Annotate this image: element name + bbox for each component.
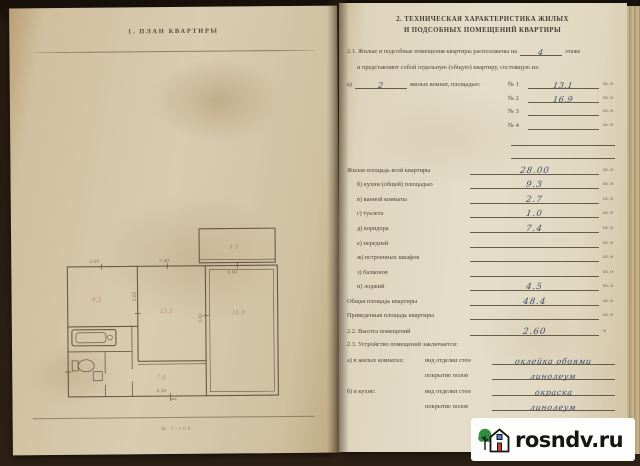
page-stack-edge (627, 6, 640, 454)
room1-area-label: 13.1 (160, 308, 173, 315)
kitchen-area-label: 9.3 (92, 297, 102, 304)
dimension-ticks (64, 262, 238, 402)
value-blank (470, 310, 599, 320)
walls-kitchen-value: окраска (534, 389, 573, 396)
unit-label: кв. м (602, 181, 618, 189)
form-line-kitchen: б) кухни (общей) площадью 9.3 кв. м (347, 175, 618, 190)
empty-blank (511, 149, 615, 159)
room-area-blank (528, 120, 599, 130)
form-line-balconies: з) балконов кв. м (347, 262, 618, 277)
rooms-block: а) 2 жилых комнат, площадью: № 1 13.1 кв… (347, 76, 618, 159)
room-area-row: № 1 13.1 кв. м (508, 76, 618, 89)
empty-continuation-line (508, 146, 618, 159)
dim-bottom: 4.28 (156, 389, 166, 394)
floors-living-value: линолеум (530, 373, 577, 380)
value-blank: линолеум (492, 370, 615, 380)
form-line-closets: ж) встроенных шкафов кв. м (347, 248, 618, 263)
kitchen-value: 9.3 (526, 182, 544, 189)
dim-top-left: 2.60 (89, 260, 99, 265)
empty-continuation-line (508, 130, 618, 146)
loggia-value: 4.5 (526, 284, 544, 291)
room-area-row: № 3 кв. м (508, 103, 618, 116)
bathtub-fixture (72, 330, 116, 346)
form-line-loggia: и) лоджий 4.5 кв. м (347, 277, 618, 292)
left-page-title: 1. ПЛАН КВАРТИРЫ (9, 27, 337, 37)
dim-vertical-mid: 3.42 (199, 313, 204, 323)
room-area-value: 13.1 (553, 82, 574, 89)
living-area-value: 28.00 (519, 168, 550, 175)
area-lines-block: Жилая площадь всей квартиры 28.00 кв. м … (347, 160, 618, 321)
form-line-bathroom: в) ванной комнаты 2.7 кв. м (347, 189, 618, 204)
watermark-rosndv[interactable]: rosndv.ru (471, 418, 635, 461)
form-line-living-area: Жилая площадь всей квартиры 28.00 кв. м (347, 160, 618, 175)
page-gutter-shadow (327, 0, 349, 466)
value-blank: оклейка обоями (492, 355, 615, 365)
value-blank: 2.7 (470, 194, 599, 204)
unit-label: кв. м (602, 283, 618, 291)
corridor-value: 7.4 (526, 226, 544, 233)
room-number: № 2 (508, 95, 525, 103)
toilet-value: 1.0 (526, 211, 544, 218)
right-page-title: 2. ТЕХНИЧЕСКАЯ ХАРАКТЕРИСТИКА ЖИЛЫХ И ПО… (347, 14, 618, 36)
finish-row-walls-living: а) в жилых комнатах: вид отделки стен ок… (347, 349, 618, 365)
unit-label: кв. м (602, 240, 618, 248)
value-blank: 7.4 (470, 223, 599, 233)
finish-row-floors-living: покрытие полов линолеум (347, 365, 618, 381)
form-line-corridor: д) коридора 7.4 кв. м (347, 218, 618, 233)
balcony-area-label: 4.5 (228, 243, 239, 250)
dim-top-mid: 3.40 (159, 259, 169, 264)
unit-label: кв. м (602, 210, 618, 218)
form-line-toilet: г) туалета 1.0 кв. м (347, 204, 618, 219)
right-page-title-line2: И ПОДСОБНЫХ ПОМЕЩЕНИЙ КВАРТИРЫ (347, 25, 618, 36)
room-number: № 1 (508, 81, 525, 89)
floor-plan: 9.3 13.1 16.9 7.4 4.5 2.60 3.40 4.00 4.2… (59, 220, 311, 409)
scale-note: М 1:100 (13, 426, 341, 434)
room-number: № 3 (508, 108, 525, 116)
unit-label: кв. м (602, 167, 618, 175)
form-line-reduced-area: Приведенная площадь квартиры кв. м (347, 306, 618, 321)
room-area-row: № 4 кв. м (508, 116, 618, 129)
unit-label: кв. м (602, 298, 618, 306)
section-2-1-line2: и представляют собой отдельную (общую) к… (357, 64, 618, 72)
right-page-title-line1: 2. ТЕХНИЧЕСКАЯ ХАРАКТЕРИСТИКА ЖИЛЫХ (347, 14, 618, 25)
value-blank: 2.60 (470, 326, 599, 336)
section-2-2-height-line: 2.2. Высота помещений 2.60 м (347, 321, 618, 336)
unit-label: кв. м (602, 312, 618, 320)
right-page: 2. ТЕХНИЧЕСКАЯ ХАРАКТЕРИСТИКА ЖИЛЫХ И ПО… (339, 3, 627, 452)
room-areas-column: № 1 13.1 кв. м № 2 16.9 кв. м № 3 кв. м (508, 76, 618, 159)
line1-text: 2.1. Жилые и подсобные помещения квартир… (347, 48, 517, 56)
room-area-row: № 2 16.9 кв. м (508, 89, 618, 102)
walls-living-value: оклейка обоями (515, 358, 593, 365)
height-value: 2.60 (522, 329, 546, 336)
unit-label: кв. м (602, 122, 618, 130)
room-area-blank (528, 106, 599, 116)
rooms-count-value: 2 (378, 82, 385, 89)
section-2-3-heading: 2.3. Устройство помещений заключается: (347, 341, 618, 349)
title-rule (33, 50, 315, 53)
form-line-hall: е) передней кв. м (347, 233, 618, 248)
finish-row-floors-kitchen: покрытие полов линолеум (347, 396, 618, 412)
unit-label: кв. м (602, 81, 618, 89)
finish-block: а) в жилых комнатах: вид отделки стен ок… (347, 349, 618, 411)
floors-kitchen-value: линолеум (530, 404, 577, 411)
value-blank: 1.0 (470, 208, 599, 218)
room-area-value: 16.9 (553, 96, 574, 103)
outer-walls (67, 265, 278, 397)
dim-top-right: 4.00 (227, 270, 237, 275)
value-blank: 28.00 (470, 165, 599, 175)
value-blank: 48.4 (470, 296, 599, 306)
rooms-count-suffix: жилых комнат, площадью: (410, 81, 481, 89)
value-blank (470, 252, 599, 262)
unit-label: кв. м (602, 108, 618, 116)
dim-vertical-left: 2.62 (133, 291, 138, 301)
line1-suffix: этаже (565, 48, 580, 56)
section-2-1-line1: 2.1. Жилые и подсобные помещения квартир… (347, 46, 618, 56)
value-blank: 4.5 (470, 281, 599, 291)
unit-label: кв. м (602, 196, 618, 204)
unit-label: м (602, 328, 618, 336)
unit-label: кв. м (602, 254, 618, 262)
watermark-text: rosndv.ru (515, 428, 623, 452)
form-line-total-area: Общая площадь квартиры 48.4 кв. м (347, 291, 618, 306)
document-photo: 1. ПЛАН КВАРТИРЫ (0, 0, 640, 466)
unit-label: кв. м (602, 269, 618, 277)
left-page: 1. ПЛАН КВАРТИРЫ (9, 6, 341, 456)
value-blank: окраска (492, 386, 615, 396)
finish-row-walls-kitchen: б) в кухне: вид отделки стен окраска (347, 380, 618, 396)
value-blank (470, 238, 599, 248)
room2-area-label: 16.9 (232, 309, 246, 316)
value-blank: линолеум (492, 401, 615, 411)
empty-blank (511, 136, 615, 146)
room-area-blank: 13.1 (528, 79, 599, 89)
corridor-area-label: 7.4 (156, 374, 166, 381)
footer-rule (33, 416, 315, 419)
unit-label: кв. м (602, 95, 618, 103)
floor-number-value: 4 (538, 49, 545, 56)
bathroom-value: 2.7 (526, 197, 544, 204)
total-area-value: 48.4 (522, 299, 546, 306)
toilet-fixture (72, 360, 102, 381)
value-blank: 9.3 (470, 179, 599, 189)
rosndv-logo-icon (477, 423, 511, 457)
rooms-count-blank: 2 (355, 79, 407, 89)
value-blank (470, 267, 599, 277)
unit-label: кв. м (602, 225, 618, 233)
room-area-blank: 16.9 (528, 93, 599, 103)
room-number: № 4 (508, 122, 525, 130)
rooms-count-line: а) 2 жилых комнат, площадью: (347, 76, 508, 89)
floor-number-blank: 4 (520, 46, 562, 56)
